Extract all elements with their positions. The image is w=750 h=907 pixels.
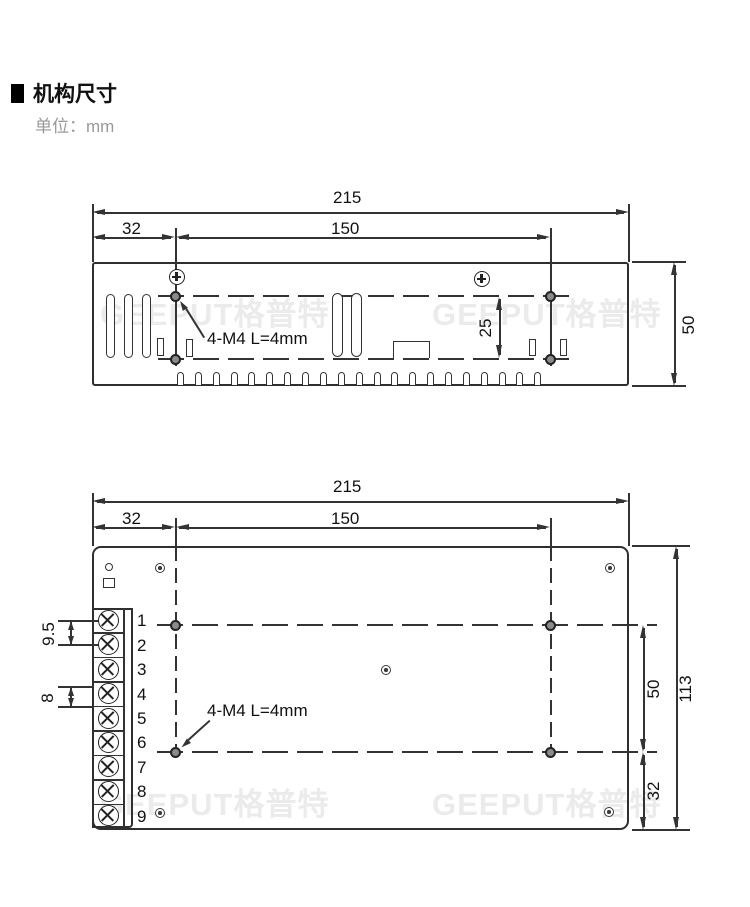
dim-left-offset: 32: [122, 509, 141, 529]
vent-slot: [516, 372, 523, 385]
arrowhead: [176, 234, 189, 240]
rivet-icon: [155, 563, 165, 573]
terminal-number: 6: [137, 733, 155, 753]
terminal-screw-icon: [98, 659, 119, 680]
mounting-hole-icon: [545, 291, 556, 302]
arrowhead: [92, 209, 105, 215]
rivet-icon: [605, 563, 615, 573]
phillips-screw-icon: [169, 269, 185, 285]
vent-slot: [499, 372, 506, 385]
vent-slot: [463, 372, 470, 385]
vent-slot: [142, 294, 151, 358]
phillips-screw-icon: [474, 271, 490, 287]
terminal-number: 3: [137, 660, 155, 680]
arrowhead: [92, 498, 105, 504]
terminal-number: 2: [137, 636, 155, 656]
vent-slot: [213, 372, 220, 385]
mounting-hole-icon: [170, 747, 181, 758]
dim-total-width: 215: [333, 477, 361, 497]
vent-slot: [351, 293, 362, 357]
terminal-number: 1: [137, 611, 155, 631]
arrowhead: [640, 817, 646, 830]
arrowhead: [68, 687, 74, 696]
mounting-hole-icon: [170, 354, 181, 365]
centerline-dashed: [158, 295, 570, 297]
arrowhead: [496, 345, 502, 358]
arrowhead: [162, 524, 175, 530]
vent-slot: [284, 372, 291, 385]
arrowhead: [640, 752, 646, 765]
extension-line: [632, 261, 686, 263]
dim-line: [97, 212, 624, 214]
vent-slot: [195, 372, 202, 385]
title-square-marker: [11, 84, 24, 103]
mounting-hole-icon: [545, 620, 556, 631]
terminal-screw-icon: [98, 708, 119, 729]
terminal-number: 7: [137, 758, 155, 778]
arrowhead: [673, 817, 679, 830]
vent-slot: [427, 372, 434, 385]
centerline-dashed: [158, 358, 570, 360]
terminal-screw-icon: [98, 805, 119, 826]
terminal-number: 4: [137, 685, 155, 705]
mechanical-drawing-page: 机构尺寸 单位：mm GEEPUT格普特 GEEPUT格普特 GEEPUT格普特…: [0, 0, 750, 907]
dim-terminal-pitch-b: 8: [38, 678, 58, 718]
rivet-icon: [604, 807, 614, 817]
vent-slot: [266, 372, 273, 385]
vent-slot: [356, 372, 363, 385]
component-rect: [560, 339, 567, 356]
mounting-hole-icon: [545, 354, 556, 365]
vent-slot: [302, 372, 309, 385]
terminal-number: 9: [137, 807, 155, 827]
dim-mount-spacing: 150: [331, 219, 359, 239]
arrowhead: [640, 739, 646, 752]
terminal-screw-icon: [98, 756, 119, 777]
vent-slot: [332, 293, 343, 357]
extension-line: [58, 620, 99, 622]
vent-slot: [338, 372, 345, 385]
extension-line: [92, 493, 94, 546]
screw-note: 4-M4 L=4mm: [207, 701, 308, 721]
mounting-hole-icon: [170, 620, 181, 631]
extension-line: [632, 385, 686, 387]
dim-mid-span: 50: [644, 669, 664, 709]
dim-left-offset: 32: [122, 219, 141, 239]
arrowhead: [671, 262, 677, 275]
vent-slot: [445, 372, 452, 385]
vent-slot: [481, 372, 488, 385]
arrowhead: [68, 636, 74, 645]
arrowhead: [68, 698, 74, 707]
terminal-screw-icon: [98, 732, 119, 753]
vent-slot: [124, 294, 133, 358]
arrowhead: [640, 625, 646, 638]
arrowhead: [673, 546, 679, 559]
vent-slot: [106, 294, 115, 358]
arrowhead: [176, 524, 189, 530]
terminal-number: 5: [137, 709, 155, 729]
component-rect: [186, 339, 193, 357]
arrowhead: [496, 297, 502, 310]
dim-line: [97, 501, 624, 503]
arrowhead: [671, 373, 677, 386]
dim-line: [674, 265, 676, 383]
extension-line: [550, 518, 552, 546]
bottom-view-case-outline: [92, 546, 629, 830]
arrowhead: [537, 234, 550, 240]
extension-line: [628, 204, 630, 262]
dim-mount-spacing: 150: [331, 509, 359, 529]
extension-line: [632, 545, 690, 547]
vent-slot: [320, 372, 327, 385]
centerline-dashed: [175, 546, 177, 752]
vent-slot: [534, 372, 541, 385]
component-rect: [157, 338, 164, 356]
arrowhead: [162, 234, 175, 240]
screw-note: 4-M4 L=4mm: [207, 329, 308, 349]
centerline-dashed: [157, 624, 657, 626]
dim-terminal-pitch-a: 9.5: [39, 614, 59, 654]
terminal-screw-icon: [98, 610, 119, 631]
extension-line: [628, 493, 630, 546]
mounting-hole-icon: [170, 291, 181, 302]
centerline-dashed: [550, 546, 552, 752]
dim-height: 113: [676, 664, 696, 714]
dim-line: [179, 527, 546, 529]
arrowhead: [68, 621, 74, 630]
terminal-screw-icon: [98, 683, 119, 704]
vent-slot: [374, 372, 381, 385]
centerline-dashed: [157, 751, 657, 753]
arrowhead: [92, 234, 105, 240]
dim-line: [179, 237, 546, 239]
extension-line: [175, 518, 177, 546]
dim-height: 50: [679, 305, 699, 345]
terminal-screw-icon: [98, 781, 119, 802]
terminal-number: 8: [137, 782, 155, 802]
mounting-hole-icon: [545, 747, 556, 758]
notch-rect: [393, 341, 430, 358]
dim-bottom-offset: 32: [644, 771, 664, 811]
arrowhead: [537, 524, 550, 530]
rivet-icon: [155, 808, 165, 818]
dim-total-width: 215: [333, 188, 361, 208]
extension-line: [92, 204, 94, 262]
extension-line: [58, 644, 99, 646]
vent-slot: [177, 372, 184, 385]
terminal-block-inner-line: [123, 608, 125, 828]
small-hole-icon: [105, 563, 113, 571]
component-rect: [529, 339, 536, 356]
small-square: [103, 578, 115, 588]
vent-slot: [231, 372, 238, 385]
rivet-icon: [381, 665, 391, 675]
extension-line: [58, 706, 92, 708]
vent-slot: [391, 372, 398, 385]
extension-line: [58, 686, 92, 688]
dim-hole-rise: 25: [476, 308, 496, 348]
unit-label: 单位：mm: [35, 112, 114, 137]
vent-slot: [409, 372, 416, 385]
arrowhead: [92, 524, 105, 530]
page-title: 机构尺寸: [33, 78, 117, 108]
vent-slot: [248, 372, 255, 385]
terminal-screw-icon: [98, 634, 119, 655]
